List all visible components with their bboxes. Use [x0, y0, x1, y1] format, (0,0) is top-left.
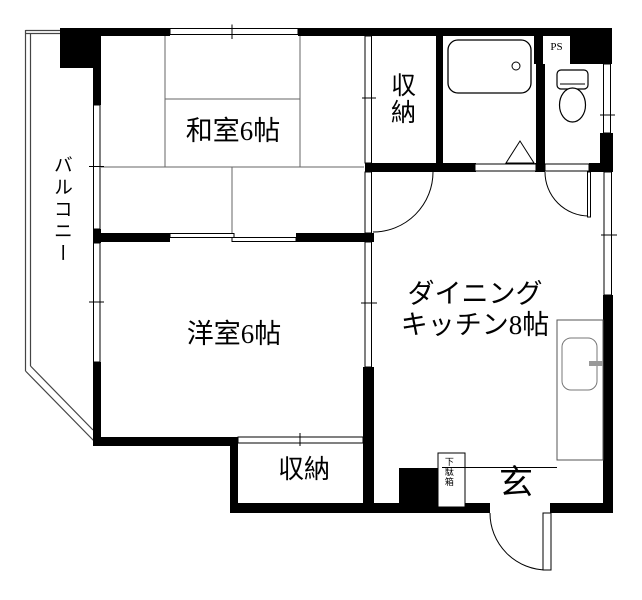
- balcony-label: バルコニー: [50, 155, 71, 265]
- floor-plan: 和室6帖 洋室6帖 ダイニングキッチン8帖 収納 収納 バルコニー 玄 PS 下…: [0, 0, 642, 600]
- bath-threshold: [475, 164, 536, 171]
- door-swing-arc-entrance: [490, 513, 547, 570]
- door-leaf-toilet: [588, 172, 591, 217]
- shoe-cabinet-label: 下駄箱: [443, 457, 453, 487]
- faucet-icon: [589, 361, 603, 366]
- pipe-space-label: PS: [543, 41, 570, 53]
- western-room-label: 洋室6帖: [161, 320, 307, 350]
- door-leaf-entrance: [543, 513, 551, 570]
- bathtub-drain-icon: [512, 62, 520, 70]
- doorway-threshold: [365, 172, 372, 233]
- toilet-bowl-icon: [560, 88, 586, 122]
- wall-storage-top: [365, 36, 372, 163]
- storage-bottom-label: 収納: [254, 456, 354, 485]
- window-north: [170, 29, 298, 35]
- dining-kitchen-label-line1: ダイニング: [408, 279, 543, 309]
- toilet-tank-icon: [557, 70, 588, 89]
- dining-kitchen-label: ダイニングキッチン8帖: [394, 279, 556, 341]
- entrance-label: 玄: [499, 465, 533, 502]
- door-swing-arc-hall: [373, 172, 433, 232]
- wall-western-room-east: [365, 242, 372, 367]
- sliding-partition-panel: [232, 238, 296, 242]
- sliding-partition-panel: [170, 234, 234, 238]
- toilet-threshold: [545, 164, 589, 171]
- japanese-room-label: 和室6帖: [160, 117, 306, 147]
- fixtures: [438, 36, 603, 507]
- door-swing-arc-toilet: [545, 172, 589, 216]
- dining-kitchen-label-line2: キッチン8帖: [401, 310, 550, 340]
- window-east-dk: [604, 172, 612, 295]
- folding-door-triangle-bath: [506, 141, 534, 163]
- window-toilet: [604, 64, 611, 133]
- storage-top-label: 収納: [387, 72, 415, 126]
